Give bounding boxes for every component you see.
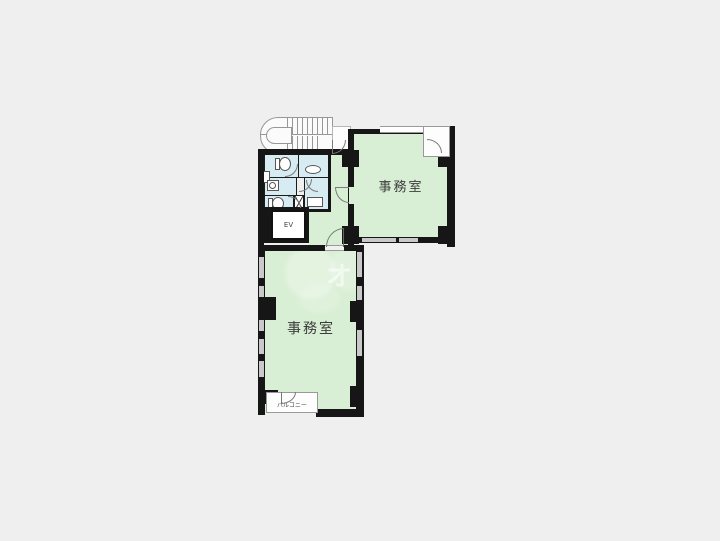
sink-basin-icon — [305, 165, 321, 174]
office-lower-label: 事務室 — [287, 318, 335, 338]
wall-lo-bottom — [316, 409, 364, 417]
stair-inner-rail — [266, 127, 292, 144]
wall-left-upper — [258, 149, 264, 251]
office-lower-label-box: 事務室 — [264, 247, 358, 409]
wash-fixture-bowl-icon — [269, 182, 276, 189]
floor-plan: オ EV — [0, 0, 720, 541]
elevator-label: EV — [284, 221, 293, 229]
office-upper-label: 事務室 — [378, 176, 423, 195]
elevator-car: EV — [271, 210, 306, 240]
stair-treads-upper — [287, 118, 332, 135]
wall-toilet-right — [328, 154, 331, 212]
office-upper-label-box: 事務室 — [351, 131, 451, 240]
counter-icon — [307, 197, 323, 207]
